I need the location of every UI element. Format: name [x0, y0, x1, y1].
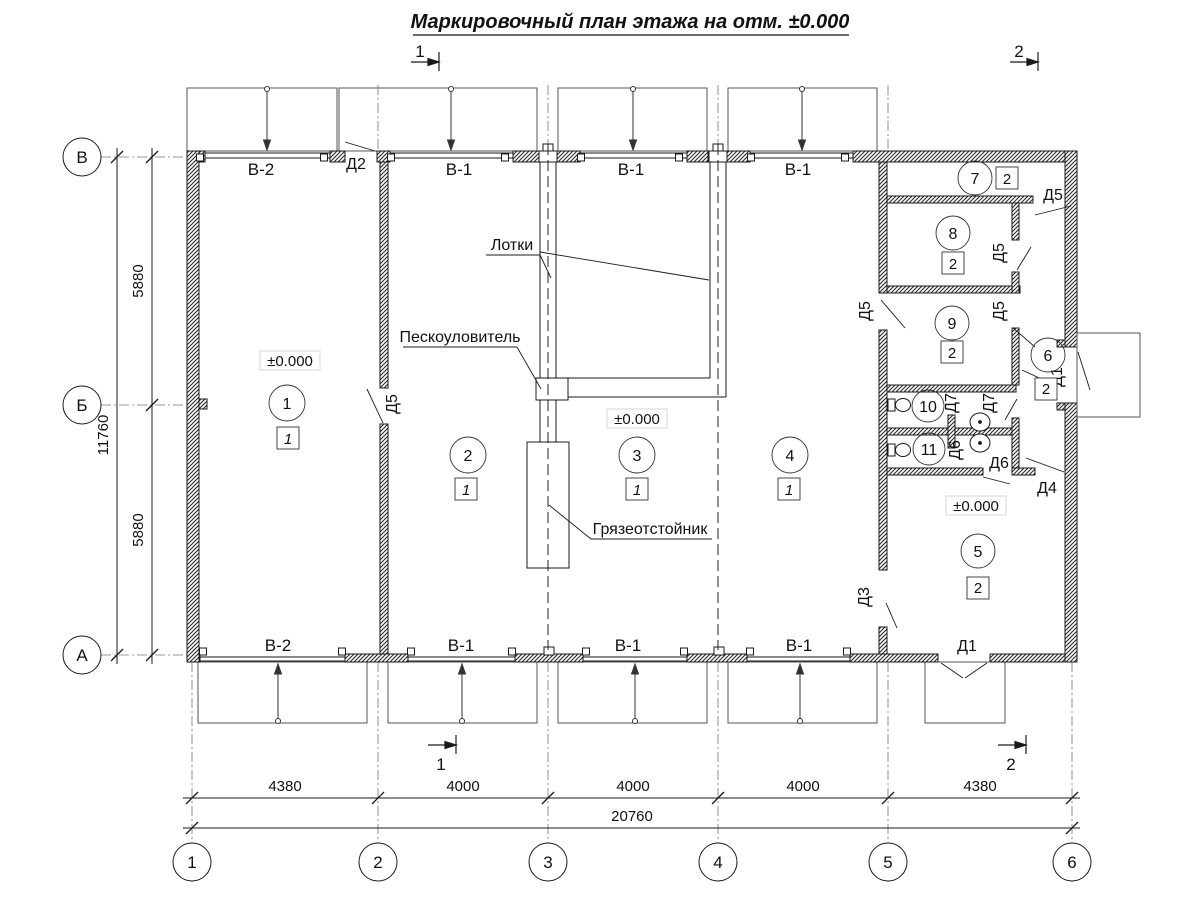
room-finish-index: 1: [633, 482, 641, 499]
room-number: 8: [949, 226, 958, 243]
elevation-mark: ±0.000: [614, 411, 660, 428]
door-label-d5: Д5: [857, 301, 874, 321]
grid-col-6: 6: [1067, 853, 1076, 872]
dim-span-1: 4380: [268, 778, 301, 795]
room-number: 7: [971, 171, 980, 188]
room-number: 5: [974, 544, 983, 561]
room-number: 4: [786, 448, 795, 465]
door-label-d6: Д6: [989, 455, 1009, 472]
dimension-ticks: [111, 151, 1078, 834]
room-number: 10: [919, 399, 937, 416]
bottom-entry-arrows: [275, 664, 804, 724]
room-number: 6: [1044, 348, 1053, 365]
grid-col-2: 2: [373, 853, 382, 872]
door-label-d3: Д3: [856, 587, 873, 607]
door-label-d1: Д1: [957, 638, 977, 655]
dim-span-3: 4000: [616, 778, 649, 795]
gate-label: В-2: [265, 636, 291, 655]
wall-markers: [197, 144, 851, 655]
toilet-icon: [888, 399, 895, 411]
door-label-d4: Д4: [1037, 480, 1057, 497]
annotation-sand-trap: Пескоуловитель: [400, 329, 521, 346]
annotation-trays: Лотки: [491, 237, 533, 254]
dim-span-5: 4380: [963, 778, 996, 795]
door-label-d6: Д6: [947, 440, 964, 460]
drawing-title: Маркировочный план этажа на отм. ±0.000: [411, 11, 850, 35]
door-label-d5: Д5: [991, 243, 1008, 263]
dim-total-width: 20760: [611, 808, 653, 825]
gate-label: В-1: [448, 636, 474, 655]
room-finish-index: 2: [1003, 171, 1011, 188]
toilet-icon: [896, 399, 911, 412]
dim-row-span-2: 5880: [130, 513, 147, 546]
room-finish-index: 2: [974, 580, 982, 597]
room-number: 2: [464, 448, 473, 465]
room-finish-index: 2: [948, 345, 956, 362]
elevation-mark: ±0.000: [953, 498, 999, 515]
toilet-icon: [896, 444, 911, 457]
grid-col-4: 4: [713, 853, 722, 872]
section-mark-2-top: 2: [1014, 42, 1023, 61]
page-title: Маркировочный план этажа на отм. ±0.000: [411, 11, 850, 33]
gate-label: В-1: [446, 160, 472, 179]
grid-row-a: А: [76, 646, 88, 665]
room-finish-index: 2: [1042, 381, 1050, 398]
grid-col-1: 1: [187, 853, 196, 872]
drainage-trays: [527, 162, 726, 568]
grid-col-5: 5: [883, 853, 892, 872]
room-finish-index: 2: [949, 256, 957, 273]
dim-row-span-1: 5880: [130, 264, 147, 297]
dimension-lines: [117, 148, 1080, 828]
grid-row-b: Б: [76, 396, 87, 415]
room-finish-index: 1: [462, 482, 470, 499]
section-mark-1-top: 1: [415, 42, 424, 61]
door-label-d7: Д7: [943, 393, 960, 413]
door-label-d5: Д5: [384, 394, 401, 414]
bottom-ramps: [198, 662, 1005, 723]
dim-span-4: 4000: [786, 778, 819, 795]
entrance-porch: [1077, 333, 1140, 417]
grid-row-v: В: [76, 148, 87, 167]
grid-col-3: 3: [543, 853, 552, 872]
door-label-d5: Д5: [991, 301, 1008, 321]
gate-sills: [200, 153, 853, 661]
dim-span-2: 4000: [446, 778, 479, 795]
section-mark-2-bottom: 2: [1006, 755, 1015, 774]
dim-total-height: 11760: [95, 415, 112, 456]
gate-label: В-1: [785, 160, 811, 179]
top-ramps: [187, 88, 877, 151]
elevation-mark: ±0.000: [267, 353, 313, 370]
grid-bubbles: [63, 138, 1091, 881]
room-number: 3: [633, 448, 642, 465]
floor-plan-svg: Маркировочный план этажа на отм. ±0.000 …: [0, 0, 1200, 900]
room-number: 9: [948, 316, 957, 333]
door-label-d7: Д7: [981, 393, 998, 413]
door-label-d2: Д2: [346, 156, 366, 173]
gate-label: В-2: [248, 160, 274, 179]
room-number: 1: [283, 396, 292, 413]
top-entry-arrows: [264, 87, 806, 151]
door-label-d5: Д5: [1043, 187, 1063, 204]
room-finish-index: 1: [284, 431, 292, 448]
gate-label: В-1: [615, 636, 641, 655]
gate-label: В-1: [618, 160, 644, 179]
annotation-mud-trap: Грязеотстойник: [593, 521, 709, 538]
floor-plan-drawing: Маркировочный план этажа на отм. ±0.000 …: [0, 0, 1200, 900]
room-finish-index: 1: [785, 482, 793, 499]
section-mark-1-bottom: 1: [436, 755, 445, 774]
gate-label: В-1: [786, 636, 812, 655]
room-number: 11: [921, 442, 938, 459]
toilet-icon: [888, 444, 895, 456]
